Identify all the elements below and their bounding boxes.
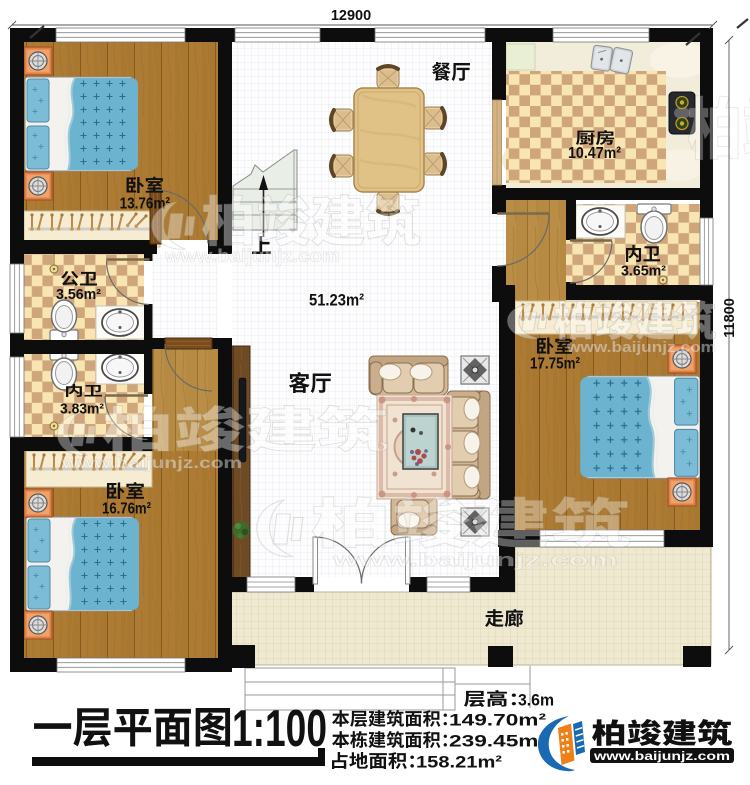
- svg-text:239.45m²: 239.45m²: [449, 732, 546, 751]
- svg-text:www.baijunjz.com: www.baijunjz.com: [164, 246, 340, 266]
- svg-text:12900: 12900: [331, 8, 371, 24]
- svg-text:11800: 11800: [722, 298, 738, 338]
- svg-text:www.baijunjz.com: www.baijunjz.com: [566, 339, 716, 356]
- svg-text:51.23m²: 51.23m²: [309, 291, 364, 310]
- svg-text:149.70m²: 149.70m²: [449, 711, 546, 730]
- svg-text:3.83m²: 3.83m²: [60, 402, 104, 418]
- svg-text:158.21m²: 158.21m²: [416, 753, 502, 772]
- svg-text:www.baijunjz.com: www.baijunjz.com: [593, 751, 730, 763]
- svg-text:10.47m²: 10.47m²: [568, 145, 621, 162]
- svg-text:3.56m²: 3.56m²: [56, 287, 101, 303]
- svg-text:www.baijunjz.com: www.baijunjz.com: [331, 550, 618, 570]
- svg-text:www.baijunjz.com: www.baijunjz.com: [61, 455, 242, 472]
- svg-text:16.76m²: 16.76m²: [102, 501, 151, 518]
- svg-text:3.65m²: 3.65m²: [621, 264, 666, 280]
- svg-text:3.6m: 3.6m: [518, 692, 554, 710]
- svg-text:1:100: 1:100: [232, 700, 327, 758]
- svg-text:17.75m²: 17.75m²: [530, 356, 580, 373]
